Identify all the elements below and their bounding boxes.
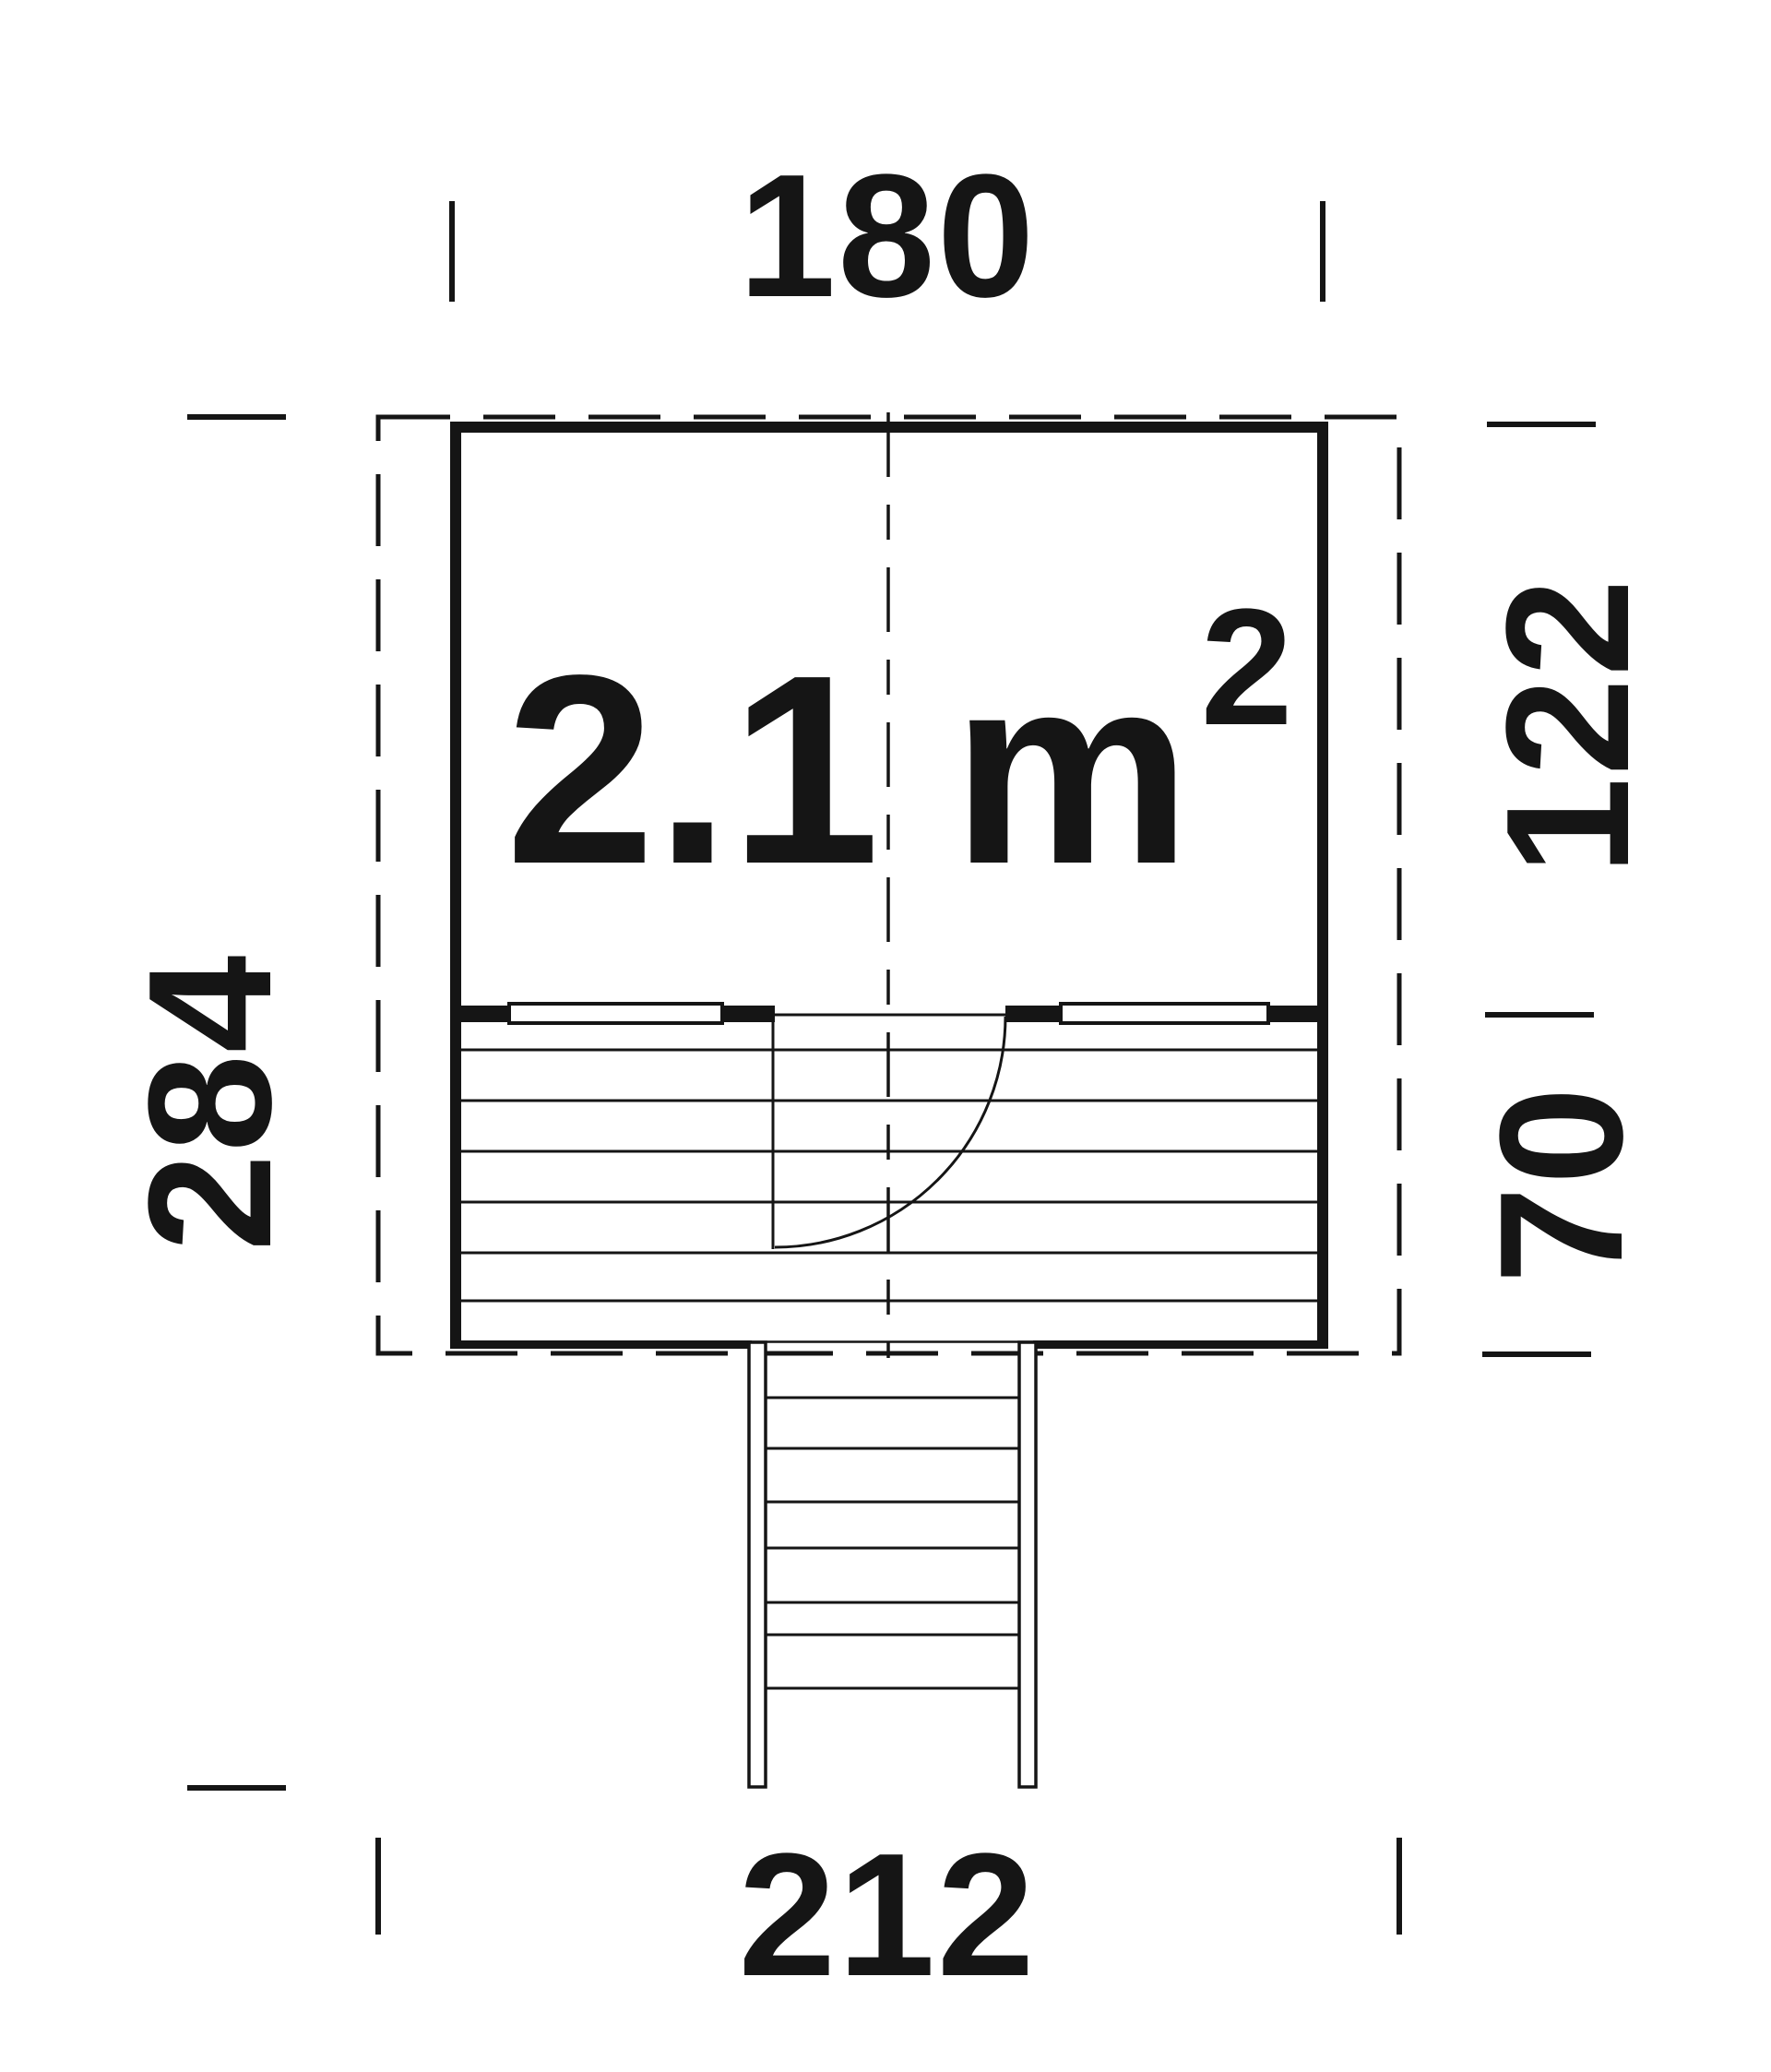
ladder-rail-left [749,1342,766,1787]
front-wall-segment [722,1006,775,1022]
floor-plan-page: 180 122 70 284 212 2.1m2 [0,0,1771,2072]
wall-left [450,422,461,1349]
window-right [1061,1004,1268,1023]
dimension-label-depth-room: 122 [1480,577,1656,875]
floor-area-value: 2.1 [505,619,880,920]
wall-right [1317,422,1328,1349]
floor-area-exponent: 2 [1201,575,1293,760]
dimension-label-width-bottom: 212 [738,1828,1036,2003]
wall-top [450,422,1328,433]
dimension-label-width-top: 180 [738,149,1036,324]
ladder-rail-right [1019,1342,1036,1787]
floor-area-label: 2.1m2 [505,585,1293,904]
dimension-ticks [187,201,1596,1935]
terrace-front-edge-right [1033,1340,1328,1349]
front-wall-segment [1005,1006,1061,1022]
front-wall-segment [1268,1006,1328,1022]
front-wall-segment [450,1006,509,1022]
dimension-label-depth-total: 284 [123,953,298,1251]
ladder-rungs [766,1398,1019,1688]
ladder [749,1342,1036,1787]
window-left [509,1004,722,1023]
dimension-label-depth-terrace: 70 [1474,1085,1649,1283]
terrace-front-edge-left [450,1340,752,1349]
floor-area-unit: m [952,619,1192,920]
